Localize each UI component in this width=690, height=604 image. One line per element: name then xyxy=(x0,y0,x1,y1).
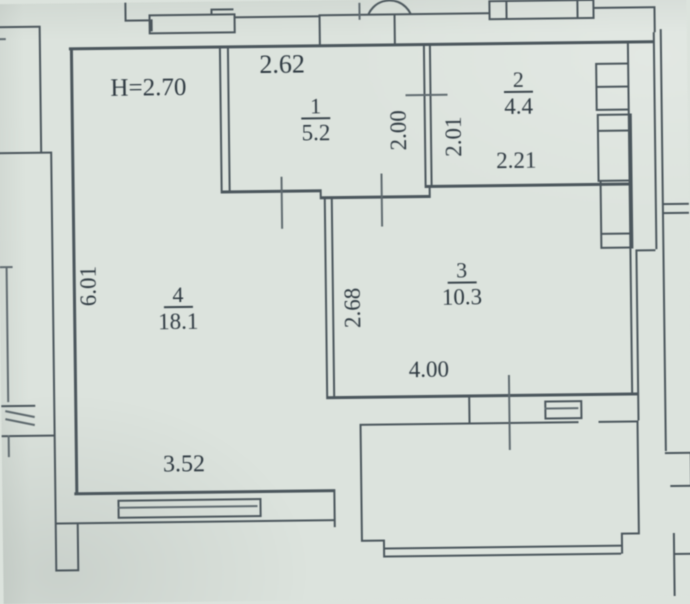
wall-segment xyxy=(55,569,79,571)
wall-segment xyxy=(227,45,231,191)
balcony-door-window xyxy=(544,400,582,419)
neighbor-wall-segment xyxy=(1,405,35,407)
wall-segment xyxy=(55,519,336,524)
dimension-tick xyxy=(508,375,510,450)
neighbor-wall-segment xyxy=(670,485,690,487)
wall-segment xyxy=(324,196,328,397)
dim-room3-width: 4.00 xyxy=(409,357,450,383)
corridor-niche xyxy=(488,0,594,20)
wall-segment xyxy=(429,43,433,186)
room3-area: 10.3 xyxy=(442,283,483,312)
dim-room4-depth: 6.01 xyxy=(76,266,102,307)
vent-shaft-block xyxy=(597,113,633,181)
corridor-wall-segment xyxy=(125,19,151,21)
neighbor-wall-segment xyxy=(0,152,52,155)
neighbor-wall-segment xyxy=(673,533,676,596)
wall-segment xyxy=(333,489,335,527)
wall-segment xyxy=(69,40,654,50)
room4-number: 4 xyxy=(163,283,192,308)
window-room4 xyxy=(117,498,261,519)
door-arc-circle xyxy=(365,0,413,14)
wall-segment xyxy=(468,394,470,424)
wall-segment xyxy=(221,189,320,193)
dim-room1-width: 2.62 xyxy=(259,49,305,80)
wall-segment xyxy=(423,43,427,186)
dim-room2-depth: 2.01 xyxy=(441,116,467,157)
ceiling-height-label: H=2.70 xyxy=(110,74,186,103)
neighbor-wall-segment xyxy=(39,26,43,152)
corridor-wall-segment xyxy=(576,0,578,17)
neighbor-wall-segment xyxy=(660,29,667,451)
room1-number: 1 xyxy=(301,94,330,119)
vent-shaft-divider xyxy=(597,130,630,132)
balcony-window xyxy=(383,545,621,550)
wall-segment xyxy=(429,185,431,196)
room2-number: 2 xyxy=(504,68,533,93)
balcony-window xyxy=(383,553,621,558)
corridor-wall-segment xyxy=(124,3,126,21)
wall-segment xyxy=(320,195,431,199)
dim-room4-width: 3.52 xyxy=(163,451,205,479)
entrance-door-jamb xyxy=(394,13,396,43)
wall-segment xyxy=(653,32,658,249)
room4-area: 18.1 xyxy=(158,308,199,337)
balcony-wall xyxy=(360,424,363,541)
room2-area: 4.4 xyxy=(504,93,533,122)
neighbor-wall-segment xyxy=(2,435,56,438)
neighbor-wall-segment xyxy=(0,26,39,29)
corridor-wall-segment xyxy=(210,8,233,10)
dim-room1-depth: 2.00 xyxy=(386,110,412,151)
balcony-wall xyxy=(361,540,384,542)
neighbor-wall-segment xyxy=(662,203,689,205)
room2-label: 2 4.4 xyxy=(504,68,534,122)
wall-segment xyxy=(74,489,335,495)
wall-segment xyxy=(50,152,57,571)
wall-segment xyxy=(77,522,80,570)
corridor-wall-segment xyxy=(210,9,212,15)
balcony-wall xyxy=(636,420,639,534)
room1-area: 5.2 xyxy=(301,119,330,148)
vent-shaft-block xyxy=(600,179,634,248)
room4-label: 4 18.1 xyxy=(158,283,199,337)
door-swing-mark xyxy=(5,418,35,425)
dim-room3-depth: 2.68 xyxy=(340,288,366,329)
dimension-tick xyxy=(380,174,382,227)
neighbor-wall-segment xyxy=(0,38,6,40)
corridor-wall-segment xyxy=(505,0,507,18)
dimension-tick xyxy=(280,177,282,229)
neighbor-wall-segment xyxy=(662,212,689,214)
wall-segment xyxy=(219,45,223,191)
door-swing-mark xyxy=(5,410,35,417)
entrance-door-arc xyxy=(361,0,413,14)
room3-number: 3 xyxy=(447,258,476,283)
floor-plan: H=2.70 2.62 1 5.2 2.00 2.01 2 4.4 2.21 3… xyxy=(0,0,690,604)
neighbor-wall-segment xyxy=(673,553,690,555)
wall-segment xyxy=(326,392,638,398)
balcony-wall xyxy=(621,533,623,554)
corridor-wall-segment xyxy=(319,15,321,44)
dim-room2-width: 2.21 xyxy=(496,148,537,174)
corridor-wall-segment xyxy=(234,15,319,18)
corridor-niche xyxy=(148,13,235,34)
dimension-tick xyxy=(405,94,447,96)
wall-segment xyxy=(598,420,638,422)
dimension-tick xyxy=(358,3,360,20)
vent-shaft-divider xyxy=(595,86,627,88)
corridor-wall-segment xyxy=(653,6,655,32)
wall-segment xyxy=(331,196,335,397)
neighbor-wall-segment xyxy=(665,452,690,454)
wall-segment xyxy=(636,249,655,251)
neighbor-wall-segment xyxy=(8,435,10,457)
neighbor-wall-segment xyxy=(6,266,9,402)
room1-label: 1 5.2 xyxy=(301,94,331,148)
room3-label: 3 10.3 xyxy=(441,258,482,312)
corridor-wall-segment xyxy=(594,6,653,9)
neighbor-wall-segment xyxy=(0,266,13,268)
vent-shaft-divider xyxy=(600,232,631,234)
